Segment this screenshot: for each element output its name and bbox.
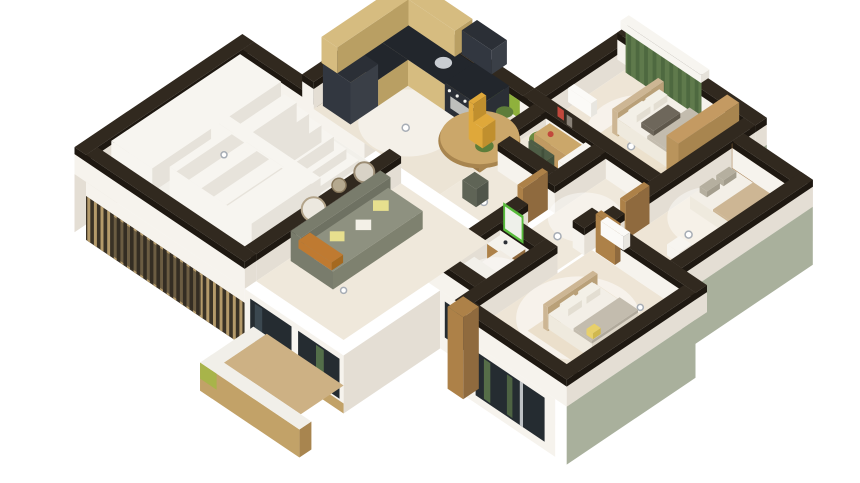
living-ceiling-light-icon-2	[341, 287, 347, 293]
corner-wood-column-sw	[448, 307, 464, 400]
slat-screen-slat-0	[87, 197, 90, 243]
study-desk-red-item	[548, 131, 554, 137]
sofa-pillow-white	[356, 220, 372, 231]
bedroom3-ceiling-light-icon	[685, 231, 692, 238]
bedroom2-ceiling-light-icon-2	[637, 304, 643, 310]
bedroom1-curtains-slat-1	[636, 35, 640, 82]
bedroom2-window-mullion	[520, 381, 523, 427]
slat-screen-slat-20	[220, 286, 223, 332]
kitchen-sink	[435, 57, 452, 69]
slat-screen-slat-1	[94, 201, 97, 247]
slat-screen-slat-22	[233, 295, 236, 341]
bathroom-faucet	[504, 240, 508, 244]
sofa-pillow-yellow-1	[373, 200, 389, 211]
bedroom1-curtains-slat-0	[627, 30, 631, 77]
dining-chair-yellow-back-sw	[469, 101, 474, 122]
bedroom2-bed-headboard-sw	[543, 304, 548, 331]
sofa-pillow-yellow-2	[330, 231, 345, 241]
slat-screen-slat-19	[213, 282, 216, 328]
slat-screen-slat-3	[107, 210, 110, 256]
slat-screen-slat-2	[101, 206, 104, 252]
bedroom2-window-curtain-1	[484, 359, 490, 403]
stove-knob-2	[456, 94, 459, 97]
bedroom2-window-curtain-2	[507, 374, 513, 418]
slat-screen-slat-18	[206, 277, 209, 323]
stove-knob-1	[448, 89, 451, 92]
bedroom1-bed-headboard-sw	[612, 109, 618, 137]
floorplan-3d-render	[0, 0, 860, 483]
living-wall-decor-circle-2	[332, 178, 346, 192]
slat-screen-slat-21	[226, 290, 229, 336]
hall-ceiling-light-icon	[554, 233, 561, 240]
stove-knob-3	[463, 100, 466, 103]
kitchen-ceiling-light-icon	[402, 124, 409, 131]
corner-wood-column-se	[463, 307, 479, 400]
bedroom1-curtains-slat-2	[644, 41, 648, 88]
stairwell-ceiling-light-icon	[221, 152, 227, 158]
floorplan-stage	[0, 0, 860, 483]
